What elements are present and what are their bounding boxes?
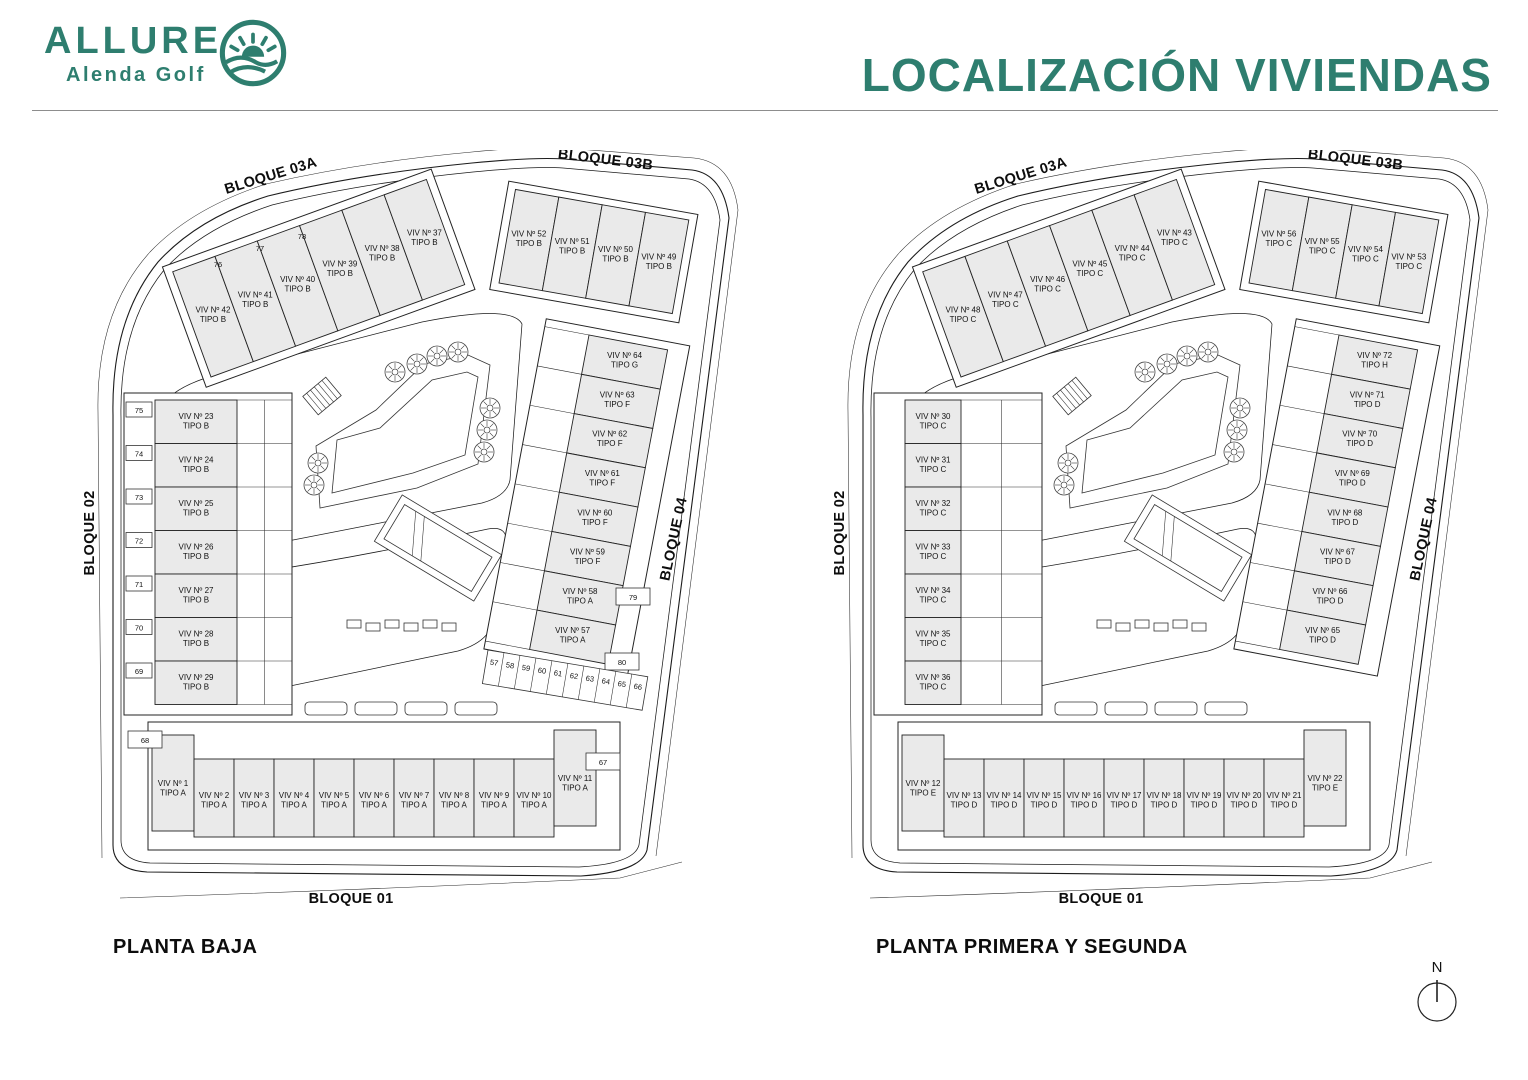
- tree-icon: [1058, 453, 1078, 473]
- block-label-b04: BLOQUE 04: [657, 496, 690, 582]
- unit-label: VIV Nº 35TIPO C: [916, 629, 951, 648]
- unit-label: VIV Nº 39TIPO B: [322, 260, 357, 279]
- brand-logo-icon: [214, 14, 292, 92]
- unit-label: VIV Nº 32TIPO C: [916, 499, 951, 518]
- sunbed: [423, 620, 437, 628]
- unit-label: VIV Nº 54TIPO C: [1348, 245, 1383, 264]
- parking-number: 76: [214, 260, 222, 269]
- parking-row: [355, 702, 397, 715]
- parking-number: 74: [135, 450, 143, 459]
- parking-row: [1105, 702, 1147, 715]
- building-bloque-04: [1234, 319, 1440, 676]
- unit-label: VIV Nº 19TIPO D: [1187, 791, 1222, 810]
- unit-label: VIV Nº 44TIPO C: [1115, 244, 1150, 263]
- unit-label: VIV Nº 18TIPO D: [1147, 791, 1182, 810]
- unit-label: VIV Nº 4TIPO A: [279, 791, 310, 810]
- compass-label: N: [1432, 959, 1443, 976]
- parking-row: [405, 702, 447, 715]
- parking-number: 57: [489, 658, 499, 668]
- unit-label: VIV Nº 56TIPO C: [1261, 230, 1296, 249]
- parking-number: 64: [601, 676, 611, 686]
- unit-label: VIV Nº 66TIPO D: [1313, 587, 1348, 606]
- unit-label: VIV Nº 33TIPO C: [916, 542, 951, 561]
- road-edge: [870, 862, 1432, 898]
- unit-label: VIV Nº 41TIPO B: [238, 290, 273, 309]
- unit-label: VIV Nº 64TIPO G: [607, 351, 642, 370]
- parking-number: 67: [599, 758, 607, 767]
- unit-label: VIV Nº 58TIPO A: [563, 587, 598, 606]
- unit-label: VIV Nº 8TIPO A: [439, 791, 470, 810]
- parking-row: [1205, 702, 1247, 715]
- unit-label: VIV Nº 26TIPO B: [179, 542, 214, 561]
- unit-label: VIV Nº 7TIPO A: [399, 791, 430, 810]
- unit-label: VIV Nº 28TIPO B: [179, 629, 214, 648]
- unit-label: VIV Nº 22TIPO E: [1308, 774, 1343, 793]
- sunbed: [1116, 623, 1130, 631]
- tree-icon: [448, 342, 468, 362]
- unit-label: VIV Nº 61TIPO F: [585, 469, 620, 488]
- tree-icon: [1224, 442, 1244, 462]
- block-label-b03a: BLOQUE 03A: [223, 154, 319, 197]
- block-label-b02: BLOQUE 02: [82, 491, 98, 576]
- unit-label: VIV Nº 6TIPO A: [359, 791, 390, 810]
- tree-icon: [427, 346, 447, 366]
- brand-name: ALLURE: [44, 20, 222, 63]
- parking-row: [1155, 702, 1197, 715]
- unit-label: VIV Nº 38TIPO B: [365, 244, 400, 263]
- sunbed: [404, 623, 418, 631]
- unit-label: VIV Nº 63TIPO F: [600, 390, 635, 409]
- sunbed: [1097, 620, 1111, 628]
- parking-number: 63: [585, 674, 595, 684]
- plan-caption-planta-baja: PLANTA BAJA: [113, 936, 257, 959]
- building-bloque-04: [484, 319, 690, 676]
- unit-label: VIV Nº 51TIPO B: [555, 237, 590, 256]
- stairs-icon: [303, 377, 341, 415]
- sports-court: [374, 495, 501, 601]
- north-compass: N: [1400, 944, 1474, 1034]
- parking-number: 70: [135, 624, 143, 633]
- sports-court: [1124, 495, 1251, 601]
- parking-number: 58: [505, 660, 515, 670]
- unit-label: VIV Nº 37TIPO B: [407, 229, 442, 248]
- unit-label: VIV Nº 71TIPO D: [1350, 390, 1385, 409]
- sunbed: [366, 623, 380, 631]
- unit-label: VIV Nº 24TIPO B: [179, 455, 214, 474]
- unit-label: VIV Nº 69TIPO D: [1335, 469, 1370, 488]
- block-label-b03a: BLOQUE 03A: [973, 154, 1069, 197]
- block-label-b02: BLOQUE 02: [832, 491, 848, 576]
- unit-label: VIV Nº 52TIPO B: [511, 230, 546, 249]
- unit-label: VIV Nº 29TIPO B: [179, 673, 214, 692]
- tree-icon: [1054, 475, 1074, 495]
- unit-label: VIV Nº 2TIPO A: [199, 791, 230, 810]
- unit-label: VIV Nº 43TIPO C: [1157, 229, 1192, 248]
- tree-icon: [407, 354, 427, 374]
- unit-label: VIV Nº 15TIPO D: [1027, 791, 1062, 810]
- unit-label: VIV Nº 1TIPO A: [158, 779, 189, 798]
- tree-icon: [480, 398, 500, 418]
- tree-icon: [474, 442, 494, 462]
- unit-label: VIV Nº 20TIPO D: [1227, 791, 1262, 810]
- tree-icon: [1227, 420, 1247, 440]
- unit-label: VIV Nº 36TIPO C: [916, 673, 951, 692]
- parking-row: [1055, 702, 1097, 715]
- unit-label: VIV Nº 12TIPO E: [906, 779, 941, 798]
- parking-number: 65: [617, 679, 627, 689]
- tree-icon: [1157, 354, 1177, 374]
- unit-label: VIV Nº 13TIPO D: [947, 791, 982, 810]
- unit-label: VIV Nº 42TIPO B: [196, 306, 231, 325]
- sunbed: [1154, 623, 1168, 631]
- tree-icon: [308, 453, 328, 473]
- unit-label: VIV Nº 40TIPO B: [280, 275, 315, 294]
- stairs-icon: [1053, 377, 1091, 415]
- unit-label: VIV Nº 27TIPO B: [179, 586, 214, 605]
- parking-number: 69: [135, 667, 143, 676]
- unit-label: VIV Nº 10TIPO A: [517, 791, 552, 810]
- unit-label: VIV Nº 31TIPO C: [916, 455, 951, 474]
- unit-label: VIV Nº 48TIPO C: [946, 306, 981, 325]
- tree-icon: [1177, 346, 1197, 366]
- unit-label: VIV Nº 30TIPO C: [916, 412, 951, 431]
- road-edge: [120, 862, 682, 898]
- unit-label: VIV Nº 57TIPO A: [555, 626, 590, 645]
- page-title: LOCALIZACIÓN VIVIENDAS: [862, 48, 1492, 102]
- parking-number: 71: [135, 580, 143, 589]
- unit-label: VIV Nº 9TIPO A: [479, 791, 510, 810]
- tree-icon: [1198, 342, 1218, 362]
- brand-subtitle: Alenda Golf: [66, 64, 206, 87]
- sunbed: [1192, 623, 1206, 631]
- unit-label: VIV Nº 72TIPO H: [1357, 351, 1392, 370]
- unit-label: VIV Nº 60TIPO F: [577, 508, 612, 527]
- site-plan-planta-primera-y-segunda: VIV Nº 30TIPO CVIV Nº 31TIPO CVIV Nº 32T…: [810, 150, 1500, 950]
- unit-label: VIV Nº 62TIPO F: [592, 430, 627, 449]
- block-label-b01: BLOQUE 01: [1059, 891, 1144, 907]
- tree-icon: [385, 362, 405, 382]
- parking-number: 78: [298, 232, 306, 241]
- unit-label: VIV Nº 46TIPO C: [1030, 275, 1065, 294]
- unit-label: VIV Nº 5TIPO A: [319, 791, 350, 810]
- unit-label: VIV Nº 47TIPO C: [988, 290, 1023, 309]
- parking-number: 72: [135, 537, 143, 546]
- tree-icon: [477, 420, 497, 440]
- block-label-b04: BLOQUE 04: [1407, 496, 1440, 582]
- parking-row: [455, 702, 497, 715]
- unit-label: VIV Nº 14TIPO D: [987, 791, 1022, 810]
- site-plan-planta-baja: VIV Nº 23TIPO BVIV Nº 24TIPO BVIV Nº 25T…: [60, 150, 750, 950]
- sunbed: [385, 620, 399, 628]
- block-label-b01: BLOQUE 01: [309, 891, 394, 907]
- unit-label: VIV Nº 53TIPO C: [1391, 252, 1426, 271]
- tree-icon: [1230, 398, 1250, 418]
- parking-number: 68: [141, 736, 149, 745]
- parking-number: 75: [135, 406, 143, 415]
- unit-label: VIV Nº 68TIPO D: [1327, 508, 1362, 527]
- unit-label: VIV Nº 34TIPO C: [916, 586, 951, 605]
- unit-label: VIV Nº 59TIPO F: [570, 548, 605, 567]
- parking-row: [305, 702, 347, 715]
- sunbed: [1135, 620, 1149, 628]
- unit-label: VIV Nº 25TIPO B: [179, 499, 214, 518]
- header-divider: [32, 110, 1498, 111]
- unit-label: VIV Nº 16TIPO D: [1067, 791, 1102, 810]
- unit-label: VIV Nº 3TIPO A: [239, 791, 270, 810]
- unit-label: VIV Nº 17TIPO D: [1107, 791, 1142, 810]
- parking-number: 73: [135, 493, 143, 502]
- tree-icon: [1135, 362, 1155, 382]
- unit-label: VIV Nº 23TIPO B: [179, 412, 214, 431]
- sunbed: [347, 620, 361, 628]
- parking-number: 59: [521, 663, 531, 673]
- unit-label: VIV Nº 70TIPO D: [1342, 430, 1377, 449]
- parking-number: 66: [633, 682, 643, 692]
- unit-label: VIV Nº 50TIPO B: [598, 245, 633, 264]
- plan-caption-planta-primera-y-segunda: PLANTA PRIMERA Y SEGUNDA: [876, 936, 1188, 959]
- parking-number: 77: [256, 244, 264, 253]
- unit-label: VIV Nº 45TIPO C: [1072, 260, 1107, 279]
- sunbed: [1173, 620, 1187, 628]
- parking-number: 60: [537, 666, 547, 676]
- unit-label: VIV Nº 55TIPO C: [1305, 237, 1340, 256]
- unit-label: VIV Nº 67TIPO D: [1320, 548, 1355, 567]
- parking-number: 79: [629, 593, 637, 602]
- sunbed: [442, 623, 456, 631]
- unit-label: VIV Nº 65TIPO D: [1305, 626, 1340, 645]
- tree-icon: [304, 475, 324, 495]
- parking-number: 61: [553, 668, 563, 678]
- parking-number: 80: [618, 658, 626, 667]
- unit-label: VIV Nº 11TIPO A: [558, 774, 593, 793]
- parking-number: 62: [569, 671, 579, 681]
- unit-label: VIV Nº 49TIPO B: [641, 252, 676, 271]
- unit-label: VIV Nº 21TIPO D: [1267, 791, 1302, 810]
